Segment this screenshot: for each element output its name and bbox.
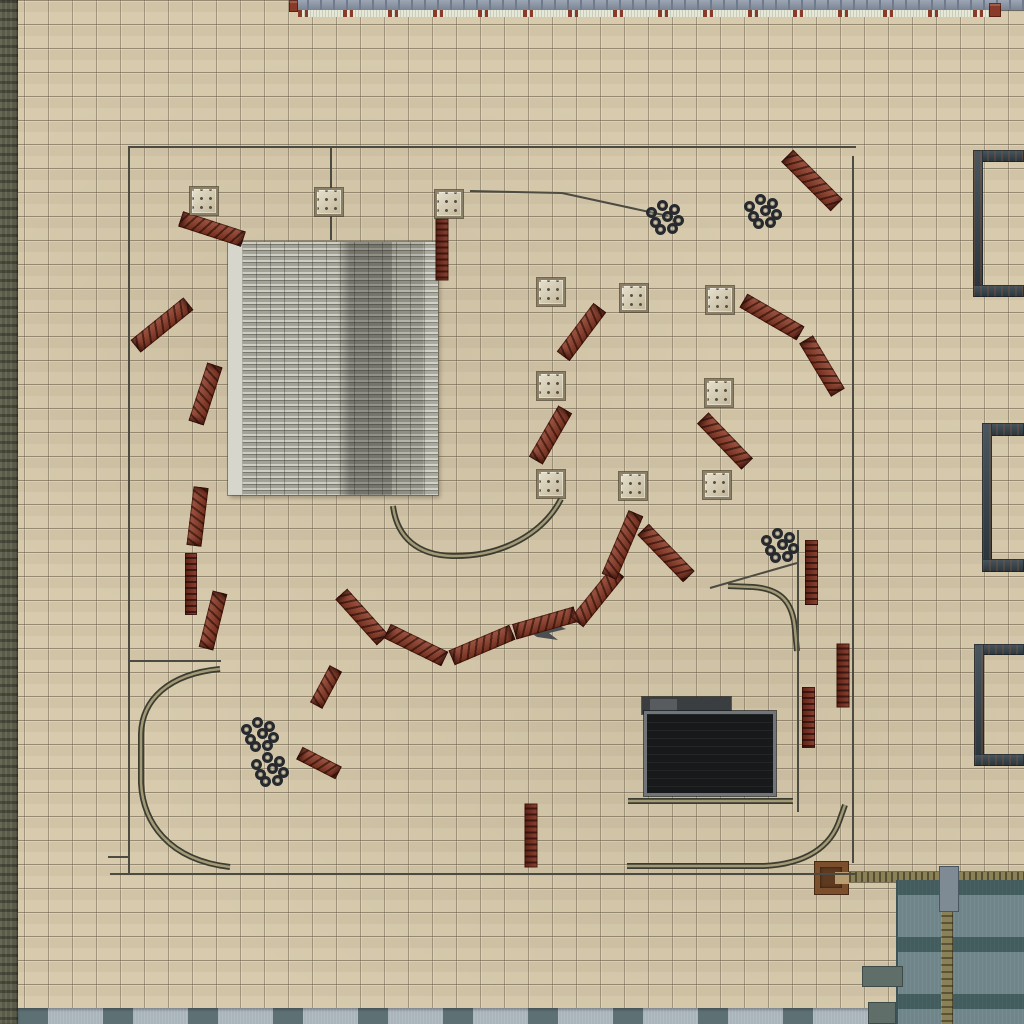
- red-barrier: [296, 747, 342, 779]
- tire-icon: [272, 775, 283, 786]
- red-barrier: [436, 218, 449, 280]
- tire-icon: [662, 211, 673, 222]
- red-barrier: [799, 335, 845, 396]
- top-building-roof: [294, 0, 1024, 10]
- crate: [619, 472, 647, 500]
- red-barrier: [525, 803, 538, 867]
- track-u-curve-outline: [393, 499, 561, 556]
- track-big-c-curve: [141, 669, 230, 867]
- red-barrier: [384, 624, 449, 666]
- corner-gray-block-1: [862, 966, 903, 987]
- red-barrier: [186, 486, 208, 546]
- tire-icon: [262, 740, 273, 751]
- track-big-c-curve-outline: [141, 669, 230, 867]
- lines-layer: [0, 0, 1024, 1024]
- top-pale-ledge: [298, 10, 992, 17]
- corner-building-seam-cap: [939, 866, 959, 912]
- crate: [706, 286, 734, 314]
- crate: [537, 372, 565, 400]
- red-barrier: [512, 606, 578, 639]
- tire-icon: [753, 218, 764, 229]
- crate: [435, 190, 463, 218]
- red-barrier: [837, 643, 850, 707]
- red-barrier: [199, 590, 228, 650]
- crate: [315, 188, 343, 216]
- red-barrier: [178, 211, 246, 247]
- corner-gray-block-2: [868, 1002, 896, 1024]
- tire-icon: [262, 752, 273, 763]
- boundary-line: [710, 563, 797, 588]
- tire-icon: [252, 717, 263, 728]
- tire-icon: [782, 551, 793, 562]
- corner-building-body: [896, 880, 1024, 1024]
- tire-icon: [250, 741, 261, 752]
- tire-icon: [655, 224, 666, 235]
- red-barrier: [556, 303, 605, 361]
- tire-icon: [777, 539, 788, 550]
- track-u-curve: [393, 499, 561, 556]
- crate: [190, 187, 218, 215]
- track-quarter-turn: [728, 586, 797, 651]
- red-barrier: [781, 149, 843, 211]
- top-right-red-block: [989, 3, 1001, 17]
- red-barrier: [802, 687, 815, 748]
- tire-icon: [667, 223, 678, 234]
- red-barrier: [448, 625, 515, 666]
- red-barrier: [697, 412, 753, 469]
- tire-icon: [657, 200, 668, 211]
- corrugated-roof: [228, 242, 438, 495]
- bracket-1-bottom: [973, 285, 1024, 297]
- tire-icon: [755, 194, 766, 205]
- red-barrier: [601, 510, 643, 580]
- bracket-3-side: [974, 644, 984, 766]
- crate: [705, 379, 733, 407]
- red-barrier: [637, 524, 694, 583]
- left-edge-strip: [0, 0, 18, 1024]
- wooden-box-slot: [835, 872, 849, 884]
- tire-icon: [772, 528, 783, 539]
- red-barrier: [310, 665, 342, 709]
- tire-icon: [765, 217, 776, 228]
- tire-icon: [260, 776, 271, 787]
- boundary-line: [470, 191, 562, 193]
- red-barrier: [188, 363, 222, 426]
- crate: [703, 471, 731, 499]
- bracket-1-side: [973, 150, 983, 297]
- red-barrier: [335, 589, 388, 646]
- red-barrier: [528, 405, 571, 464]
- red-barrier: [805, 540, 818, 605]
- red-barrier: [739, 294, 804, 341]
- crate: [620, 284, 648, 312]
- track-quarter-turn-outline: [728, 586, 797, 651]
- top-red-crate-marks: [289, 0, 298, 12]
- red-barrier: [131, 297, 194, 352]
- tire-icon: [267, 763, 278, 774]
- tire-icon: [760, 205, 771, 216]
- dark-building-main: [644, 711, 776, 796]
- crate: [537, 470, 565, 498]
- bracket-2-side: [982, 423, 992, 571]
- bottom-roof-strip: [18, 1008, 890, 1024]
- track-bottom-right-curve: [627, 805, 845, 866]
- red-barrier: [185, 553, 197, 615]
- tire-icon: [257, 728, 268, 739]
- bracket-2-bottom: [982, 559, 1024, 572]
- bracket-3-bottom: [974, 754, 1024, 766]
- game-map-stage[interactable]: [0, 0, 1024, 1024]
- track-bottom-right-curve-outline: [627, 805, 845, 866]
- tire-icon: [770, 552, 781, 563]
- crate: [537, 278, 565, 306]
